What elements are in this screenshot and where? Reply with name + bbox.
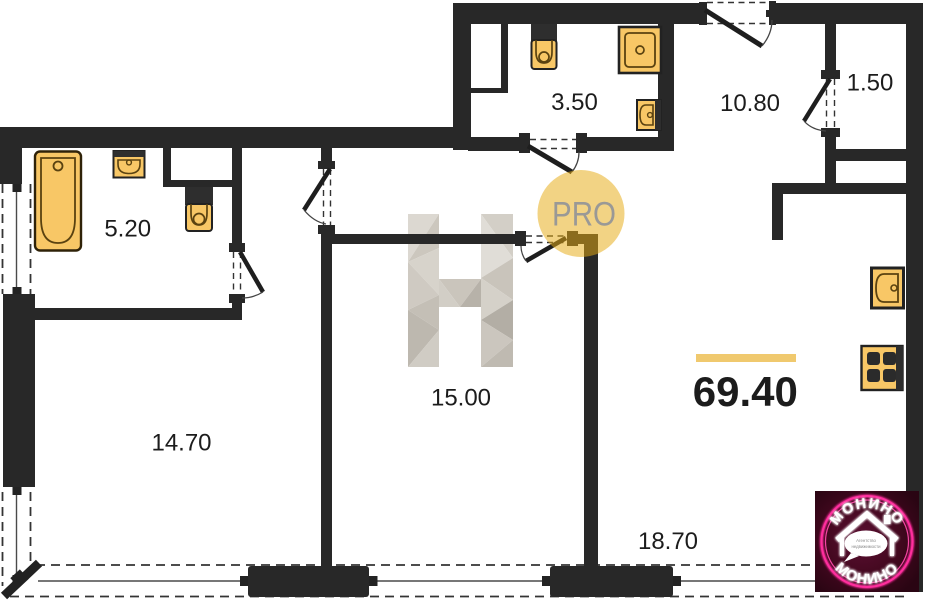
svg-text:10.80: 10.80 <box>720 90 780 117</box>
svg-text:3.50: 3.50 <box>551 89 598 116</box>
svg-text:5.20: 5.20 <box>104 216 151 243</box>
svg-text:1.50: 1.50 <box>847 70 894 97</box>
svg-text:PRO: PRO <box>552 196 616 234</box>
svg-text:Агентство: Агентство <box>856 538 876 543</box>
svg-text:69.40: 69.40 <box>693 368 798 415</box>
svg-text:14.70: 14.70 <box>151 430 211 457</box>
svg-text:18.70: 18.70 <box>638 528 698 555</box>
svg-text:недвижимости: недвижимости <box>852 544 882 549</box>
svg-text:15.00: 15.00 <box>431 385 491 412</box>
